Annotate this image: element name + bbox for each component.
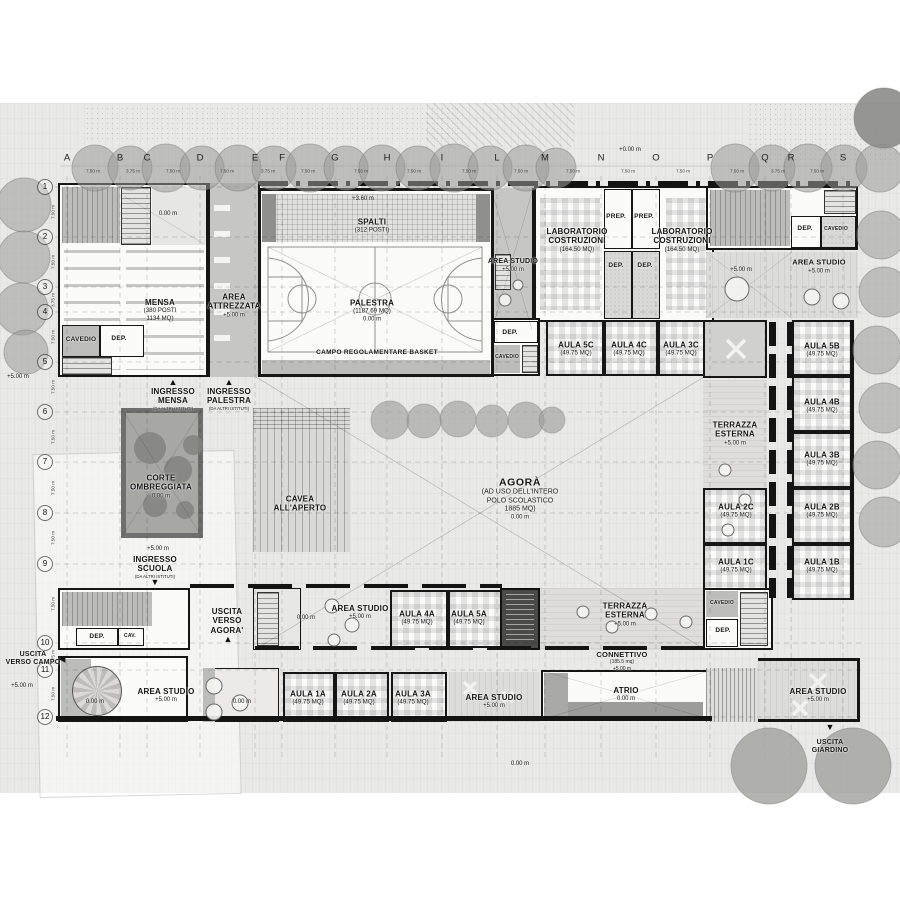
label-campo-basket: CAMPO REGOLAMENTARE BASKET — [316, 349, 438, 357]
wall — [190, 584, 502, 588]
grid-row-label: 5 — [37, 354, 53, 370]
room-label-palestra: PALESTRA(1187.69 MQ)0.00 m — [350, 299, 394, 324]
dimension-label: 7.50 m — [301, 169, 315, 174]
room-label-area-attrezzata: AREA ATTREZZATA+5.00 m — [207, 293, 260, 320]
grid-column-label: O — [652, 153, 659, 164]
stair — [824, 190, 856, 214]
room-label-agora: AGORÀ(AD USO DELL'INTERO POLO SCOLASTICO… — [482, 476, 558, 521]
grid-column-label: F — [279, 153, 285, 164]
dimension-label: 7.50 m — [514, 169, 528, 174]
corridor-lockers — [769, 322, 776, 598]
room-label-aula-5b: AULA 5B(49.75 MQ) — [804, 342, 840, 359]
room-label-area-studio-bc: AREA STUDIO+5.00 m — [465, 693, 522, 711]
dimension-label: 7.50 m — [51, 255, 56, 269]
grid-column-label: C — [144, 153, 151, 164]
spiral-stair — [72, 666, 122, 716]
grid-row-label: 8 — [37, 505, 53, 521]
room-label-aula-3b: AULA 3B(49.75 MQ) — [804, 451, 840, 468]
wc-room — [710, 190, 790, 246]
room-label-aula-5a: AULA 5A(49.75 MQ) — [451, 610, 487, 627]
label-ingresso-scuola: INGRESSO SCUOLA(DA ALTRI ISTITUTI) — [133, 555, 177, 579]
room-label-atrio: ATRIO0.00 m — [613, 686, 638, 704]
dimension-label: 3.75 m — [261, 169, 275, 174]
room-label-cavedio: CAVEDIO — [495, 355, 519, 361]
dimension-label: 7.50 m — [51, 597, 56, 611]
dimension-label: 7.50 m — [51, 430, 56, 444]
elevation-label: 0.00 m — [297, 615, 315, 621]
cavea-top-hatch — [253, 408, 350, 432]
room-label-aula-2a: AULA 2A(49.75 MQ) — [341, 690, 377, 707]
floor-plan: A B C D E F G H I L M N O P Q R S 1 2 3 … — [0, 0, 900, 900]
room-label-lab-left: LABORATORIO COSTRUZIONI(164.50 MQ) — [546, 227, 607, 253]
grid-row-label: 9 — [37, 556, 53, 572]
grid-column-label: H — [384, 153, 391, 164]
dimension-label: 7.50 m — [220, 169, 234, 174]
dimension-label: 7.50 m — [354, 169, 368, 174]
dimension-label: 7.50 m — [621, 169, 635, 174]
dimension-label: 7.50 m — [676, 169, 690, 174]
room-label-cavedio: CAVEDIO — [710, 601, 734, 607]
arrow-up-icon: ▲ — [169, 377, 178, 387]
arrow-left-icon: ◀ — [59, 654, 66, 665]
dimension-label: 7.50 m — [86, 169, 100, 174]
room-label-terrazza-2: TERRAZZA ESTERNA+5.00 m — [603, 602, 648, 629]
planting-strip — [748, 102, 900, 162]
mensa-wc — [62, 187, 120, 243]
room-label-area-studio-top: AREA STUDIO+5.00 m — [488, 258, 538, 274]
grid-column-label: L — [494, 153, 499, 164]
dimension-label: 7.50 m — [51, 330, 56, 344]
room-label-lab-right: LABORATORIO COSTRUZIONI(164.50 MQ) — [651, 227, 712, 253]
elevation-label: +5.00 m — [7, 374, 29, 380]
dimension-label: 7.50 m — [51, 687, 56, 701]
palestra-south-strip — [262, 360, 490, 374]
dimension-label: 7.50 m — [51, 380, 56, 394]
equipment-shelves — [214, 205, 230, 355]
datum-label: 0.00 m — [511, 761, 529, 767]
room-label-cav: CAV. — [124, 634, 136, 640]
label-ingresso-palestra: INGRESSO PALESTRA(DA ALTRI ISTITUTI) — [207, 387, 251, 411]
room-label-aula-5c: AULA 5C(49.75 MQ) — [558, 341, 594, 358]
room-label-aula-2c: AULA 2C(49.75 MQ) — [718, 503, 754, 520]
north-wall — [258, 181, 858, 186]
room-label-aula-4b: AULA 4B(49.75 MQ) — [804, 398, 840, 415]
room-label-aula-1a: AULA 1A(49.75 MQ) — [290, 690, 326, 707]
stair — [740, 592, 768, 646]
room-label-dep: DEP. — [89, 633, 104, 641]
room-label-aula-2b: AULA 2B(49.75 MQ) — [804, 503, 840, 520]
label-connettivo: CONNETTIVO(185.5 mq)+5.00 m — [596, 651, 647, 673]
mensa-stair — [121, 187, 151, 245]
dimension-label: 7.50 m — [51, 205, 56, 219]
room-label-prep: PREP. — [606, 213, 626, 221]
dimension-label: 3.75 m — [51, 293, 56, 307]
dimension-label: 7.50 m — [462, 169, 476, 174]
room-label-dep: DEP. — [715, 627, 730, 635]
room-label-terrazza-1: TERRAZZA ESTERNA+5.00 m — [713, 421, 758, 448]
room-label-dep: DEP. — [797, 225, 812, 233]
corridor-lockers — [787, 322, 794, 598]
stand-end — [262, 194, 276, 242]
room-label-aula-1c: AULA 1C(49.75 MQ) — [718, 558, 754, 575]
dimension-label: 7.50 m — [407, 169, 421, 174]
grid-column-label: Q — [761, 153, 768, 164]
grid-row-label: 1 — [37, 179, 53, 195]
elevation-label: +5.00 m — [730, 267, 752, 273]
room-label-area-studio-tr: AREA STUDIO+5.00 m — [792, 259, 846, 276]
dimension-label: 3.75 m — [126, 169, 140, 174]
terrace-room — [703, 320, 767, 378]
room-label-mensa: MENSA(380 POSTI 1134 MQ) — [144, 298, 177, 322]
stair — [522, 345, 538, 373]
dimension-label: 7.50 m — [810, 169, 824, 174]
room-label-cavedio: CAVEDIO — [824, 227, 848, 233]
grid-column-label: G — [331, 153, 338, 164]
grid-row-label: 10 — [37, 635, 53, 651]
elevation-label: +5.00 m — [11, 683, 33, 689]
arrow-up-icon: ▲ — [225, 377, 234, 387]
stair — [257, 592, 279, 646]
room-label-cavea: CAVEA ALL'APERTO — [274, 495, 327, 514]
room-label-area-studio-bl: AREA STUDIO+5.00 m — [137, 687, 194, 705]
atrio-service — [544, 673, 568, 717]
dimension-label: 7.50 m — [166, 169, 180, 174]
label-uscita-campo: USCITA VERSO CAMPO — [6, 651, 61, 668]
datum-label: +0.00 m — [619, 147, 641, 153]
room-label-dep: DEP. — [608, 262, 623, 270]
grid-column-label: A — [64, 153, 70, 164]
dimension-label: 7.50 m — [566, 169, 580, 174]
room-label-spalti: SPALTI(312 POSTI) — [355, 218, 390, 235]
elevation-label: +5.00 m — [147, 546, 169, 552]
room-label-aula-4c: AULA 4C(49.75 MQ) — [611, 341, 647, 358]
room-label-area-studio-br: AREA STUDIO+5.00 m — [789, 687, 846, 705]
grid-column-label: E — [252, 153, 258, 164]
grid-column-label: M — [541, 153, 549, 164]
grid-column-label: S — [840, 153, 846, 164]
lab-desks — [666, 198, 710, 310]
lab-desks — [540, 198, 600, 310]
room-label-dep: DEP. — [637, 262, 652, 270]
room-label-area-studio-mid: AREA STUDIO+5.00 m — [331, 604, 388, 622]
stair — [62, 357, 112, 375]
arrow-up-icon: ▲ — [224, 634, 233, 644]
elevation-label: +3.60 m — [352, 196, 374, 202]
grid-row-label: 7 — [37, 454, 53, 470]
elevation-label: 0.00 m — [86, 699, 104, 705]
hatch-patch — [426, 103, 574, 147]
east-wall — [850, 320, 854, 600]
ramp-hatch — [706, 668, 760, 722]
room-label-dep: DEP. — [502, 329, 517, 337]
arrow-down-icon: ▼ — [151, 577, 160, 587]
atrio-ramp — [545, 702, 703, 716]
room-label-aula-3c: AULA 3C(49.75 MQ) — [663, 341, 699, 358]
grid-column-label: D — [197, 153, 204, 164]
south-wall — [56, 716, 712, 721]
service-strip — [203, 668, 215, 722]
grid-column-label: B — [117, 153, 123, 164]
grid-column-label: N — [598, 153, 605, 164]
label-ingresso-mensa: INGRESSO MENSA(DA ALTRI ISTITUTI) — [151, 387, 195, 411]
grid-row-label: 12 — [37, 709, 53, 725]
room-label-aula-3a: AULA 3A(49.75 MQ) — [395, 690, 431, 707]
planting-strip — [85, 106, 460, 142]
dimension-label: 7.50 m — [51, 531, 56, 545]
grid-column-label: P — [707, 153, 713, 164]
dimension-label: 3.75 m — [771, 169, 785, 174]
stair — [506, 594, 534, 644]
elevation-label: 0.00 m — [159, 211, 177, 217]
grid-column-label: R — [788, 153, 795, 164]
room-label-dep: DEP. — [111, 335, 126, 343]
grid-row-label: 6 — [37, 404, 53, 420]
grid-row-label: 2 — [37, 229, 53, 245]
dimension-label: 7.50 m — [730, 169, 744, 174]
stand-end — [476, 194, 490, 242]
grid-column-label: I — [441, 153, 444, 164]
room-label-cavedio: CAVEDIO — [66, 336, 97, 344]
label-uscita-agora: USCITA VERSO AGORA' — [211, 607, 244, 635]
room-label-corte: CORTE OMBREGGIATA0.00 m — [130, 474, 192, 501]
label-uscita-giardino: USCITA GIARDINO — [812, 739, 849, 756]
dimension-label: 7.50 m — [51, 481, 56, 495]
room-label-aula-4a: AULA 4A(49.75 MQ) — [399, 610, 435, 627]
arrow-down-icon: ▼ — [826, 722, 835, 732]
elevation-label: 0.00 m — [233, 699, 251, 705]
wc-room — [62, 592, 152, 626]
room-label-prep: PREP. — [634, 213, 654, 221]
room-label-aula-1b: AULA 1B(49.75 MQ) — [804, 558, 840, 575]
